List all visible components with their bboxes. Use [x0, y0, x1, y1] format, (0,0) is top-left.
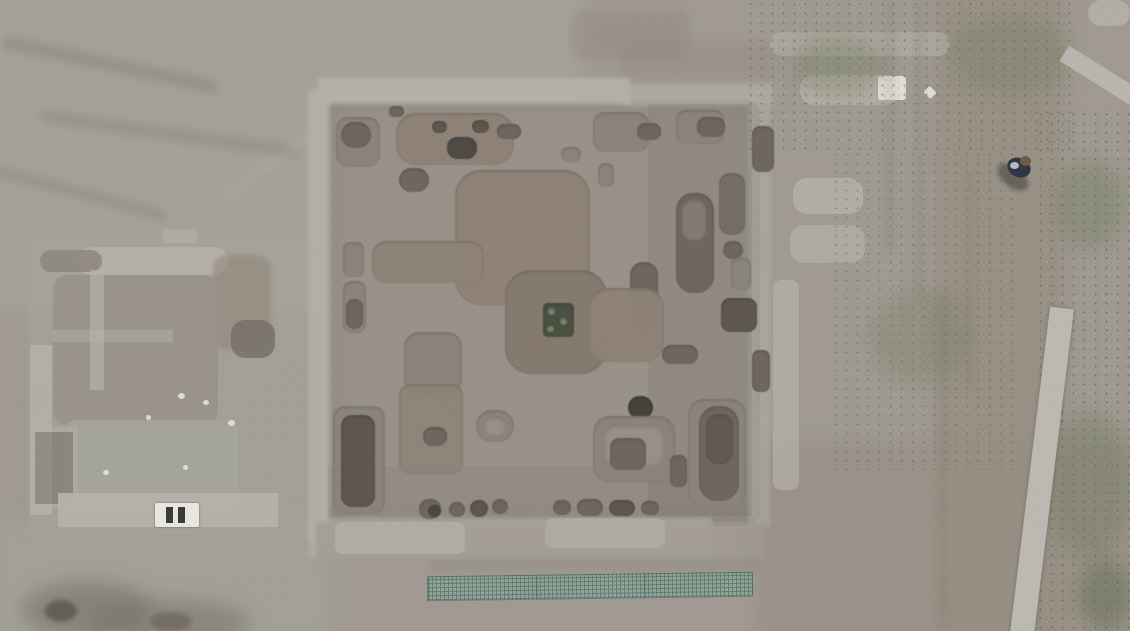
path-rut: [965, 170, 973, 390]
excavation-pit: [731, 258, 751, 290]
excavation-pit: [706, 414, 733, 464]
vegetation-blob: [870, 290, 970, 385]
excavation-pit: [470, 500, 488, 517]
rubble-cluster-south: [545, 518, 665, 548]
path-rut: [915, 0, 923, 300]
excavation-pit: [449, 502, 465, 517]
excavation-pit: [682, 200, 706, 240]
vegetation-blob: [1055, 160, 1125, 250]
dark-rock: [45, 600, 77, 622]
excavation-pit: [721, 298, 757, 332]
excavation-pit: [723, 241, 743, 259]
person-shirt: [1010, 162, 1019, 169]
excavation-pit: [447, 137, 477, 159]
path-rut: [885, 0, 895, 250]
excavation-pit: [472, 120, 489, 133]
excavation-pit: [610, 438, 646, 470]
excavation-pit: [598, 163, 614, 187]
excavation-pit: [343, 242, 364, 277]
person-head: [1020, 156, 1031, 166]
excavation-pit: [346, 299, 363, 329]
stone-cluster-corner: [1088, 0, 1130, 26]
excavation-pit: [399, 168, 429, 192]
excavation-pit: [492, 499, 508, 514]
excavation-pit: [423, 427, 447, 446]
rubble-column-east: [773, 280, 799, 490]
excavation-pit: [560, 318, 567, 325]
excavation-pit: [497, 124, 521, 139]
excavation-pit: [372, 241, 484, 283]
excavation-pit: [609, 500, 635, 516]
mesh-shadow: [430, 560, 760, 570]
excavation-pit: [553, 500, 571, 515]
path-rut: [938, 290, 948, 631]
excavation-pit: [641, 501, 659, 515]
excavation-pit: [561, 147, 581, 162]
excavation-pit: [670, 455, 687, 487]
excavation-pit: [548, 308, 555, 315]
vegetation-blob: [950, 15, 1070, 95]
excavation-pit: [697, 117, 725, 137]
excavation-pit: [719, 173, 745, 235]
excavation-pit: [543, 303, 574, 337]
vegetation-blob: [790, 35, 885, 95]
excavation-pit: [637, 123, 661, 140]
rubble-cluster-south: [335, 522, 465, 554]
vegetation-blob: [1048, 410, 1130, 560]
excavation-pit: [588, 288, 664, 362]
excavation-pit: [752, 350, 770, 392]
excavation-pit: [341, 122, 371, 148]
excavation-pit: [577, 499, 603, 516]
excavation-pit: [389, 106, 404, 117]
excavation-pit: [428, 505, 441, 517]
excavation-pit: [484, 417, 506, 435]
excavation-pit: [662, 345, 698, 364]
excavation-pit: [432, 121, 447, 133]
person: [995, 152, 1043, 196]
dark-rock: [150, 612, 192, 631]
mesh-panel-strip: [427, 572, 753, 602]
excavation-pit: [341, 415, 375, 507]
aerial-photo-excavation-site: [0, 0, 1130, 631]
vegetation-blob: [1078, 560, 1130, 630]
excavation-pit: [547, 326, 554, 332]
